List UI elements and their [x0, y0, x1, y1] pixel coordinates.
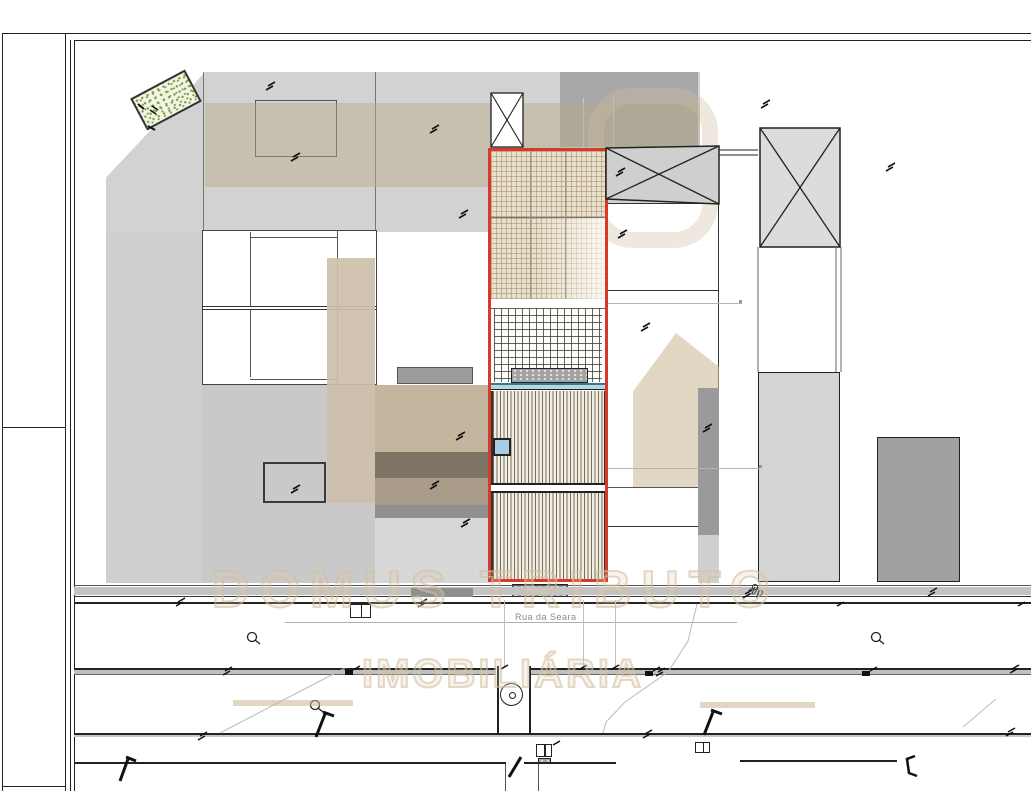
- faint-survey-lines: [220, 604, 996, 733]
- x-parallelogram: [606, 146, 719, 204]
- x-rect-large: [760, 128, 840, 247]
- pole-marks: [120, 710, 722, 781]
- watermark-dash-right: [700, 702, 815, 708]
- gate-flags: [345, 666, 877, 676]
- drawing-symbols-overlay: [0, 0, 1031, 791]
- dp-annotation-ring: [752, 584, 758, 590]
- bracket-mark: [907, 756, 917, 776]
- site-plan-canvas: Rua da Seara d/p DOMUS TRIBUTO IMOBILIÁR…: [0, 0, 1031, 791]
- vegetation-ticks: [138, 104, 155, 130]
- street-name-label: Rua da Seara: [515, 612, 577, 622]
- dim-end-squares: [739, 300, 762, 468]
- x-box-small: [491, 93, 523, 147]
- watermark-dash-left: [233, 700, 353, 706]
- street-tick-marks: [176, 588, 1025, 745]
